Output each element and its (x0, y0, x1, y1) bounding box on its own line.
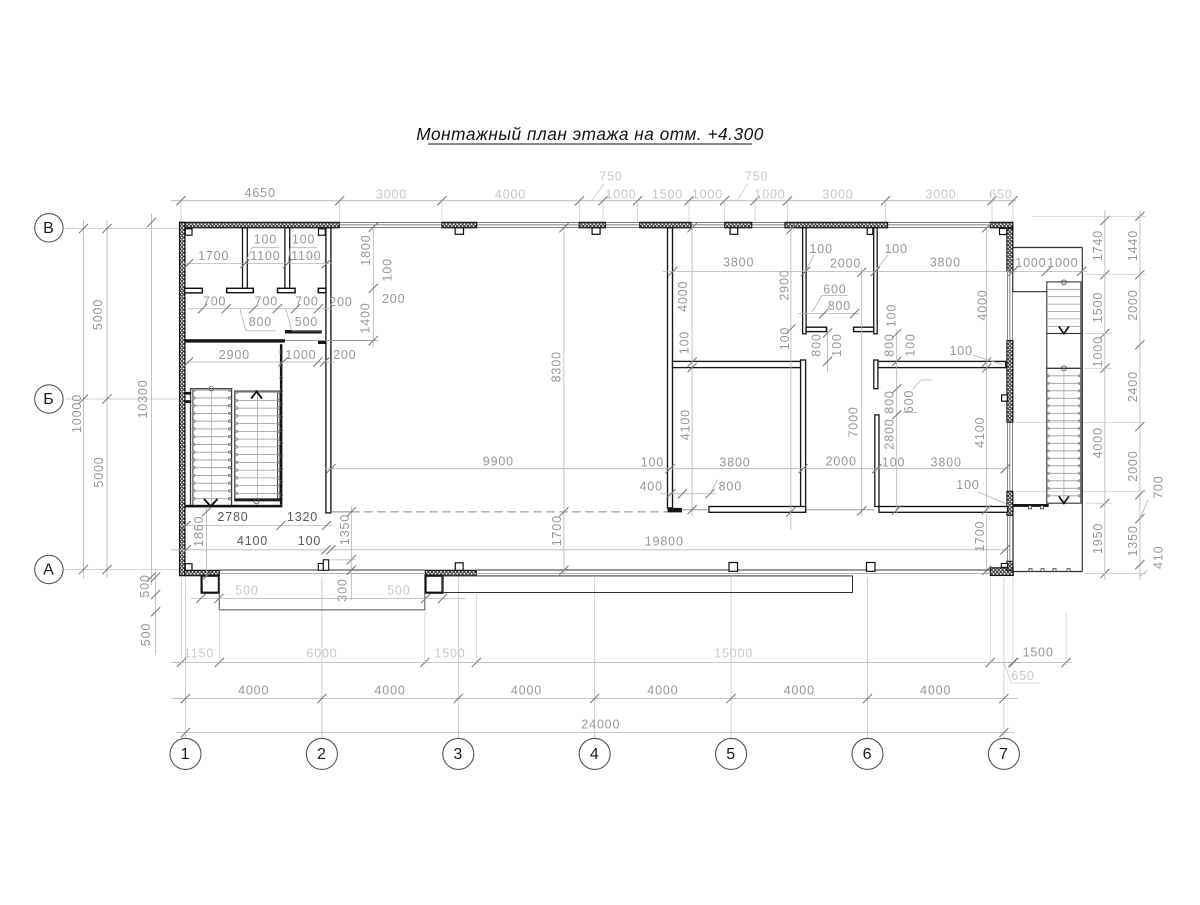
svg-text:100: 100 (885, 304, 899, 327)
svg-text:100: 100 (809, 242, 832, 256)
svg-text:4100: 4100 (237, 534, 268, 548)
svg-text:1500: 1500 (1023, 646, 1054, 660)
svg-text:4000: 4000 (647, 684, 678, 698)
svg-text:2000: 2000 (830, 256, 861, 270)
svg-text:100: 100 (830, 333, 844, 356)
svg-text:1700: 1700 (973, 521, 987, 552)
svg-text:А: А (43, 562, 55, 579)
svg-text:Монтажный план этажа на отм. +: Монтажный план этажа на отм. +4.300 (416, 124, 764, 144)
svg-text:1000: 1000 (605, 188, 636, 202)
svg-text:4000: 4000 (511, 684, 542, 698)
svg-text:3000: 3000 (376, 188, 407, 202)
svg-text:4000: 4000 (784, 684, 815, 698)
svg-text:1000: 1000 (754, 188, 785, 202)
svg-text:800: 800 (882, 333, 896, 356)
svg-text:200: 200 (382, 292, 405, 306)
svg-text:3800: 3800 (930, 256, 961, 270)
svg-text:Б: Б (43, 391, 54, 408)
svg-text:100: 100 (641, 455, 664, 469)
svg-text:1350: 1350 (1126, 525, 1140, 556)
svg-text:100: 100 (381, 258, 395, 281)
svg-text:750: 750 (599, 170, 622, 184)
svg-text:2780: 2780 (217, 510, 248, 524)
svg-text:6000: 6000 (306, 646, 337, 660)
svg-text:4100: 4100 (973, 417, 987, 448)
svg-text:1500: 1500 (1091, 292, 1105, 323)
svg-text:3: 3 (453, 746, 463, 763)
svg-text:4000: 4000 (976, 289, 990, 320)
svg-text:2400: 2400 (1126, 371, 1140, 402)
svg-text:500: 500 (295, 315, 318, 329)
svg-text:100: 100 (956, 478, 979, 492)
svg-text:100: 100 (298, 534, 321, 548)
svg-text:2000: 2000 (1126, 289, 1140, 320)
svg-text:100: 100 (292, 233, 315, 247)
svg-text:600: 600 (902, 390, 916, 413)
svg-text:5000: 5000 (91, 299, 105, 330)
svg-text:1700: 1700 (550, 515, 564, 546)
svg-text:1740: 1740 (1091, 230, 1105, 261)
svg-text:100: 100 (949, 344, 972, 358)
svg-text:1800: 1800 (359, 234, 373, 265)
svg-text:700: 700 (255, 294, 278, 308)
svg-text:1500: 1500 (652, 188, 683, 202)
svg-text:1000: 1000 (285, 348, 316, 362)
svg-text:15000: 15000 (714, 646, 753, 660)
svg-text:1700: 1700 (198, 249, 229, 263)
svg-text:600: 600 (823, 283, 846, 297)
svg-text:7000: 7000 (847, 406, 861, 437)
svg-text:3800: 3800 (723, 256, 754, 270)
svg-text:3800: 3800 (931, 455, 962, 469)
svg-text:4650: 4650 (245, 186, 276, 200)
svg-text:1950: 1950 (1091, 523, 1105, 554)
svg-text:650: 650 (1011, 669, 1034, 683)
svg-text:1440: 1440 (1126, 230, 1140, 261)
svg-text:8300: 8300 (550, 351, 564, 382)
svg-text:5: 5 (726, 746, 736, 763)
svg-text:10000: 10000 (70, 394, 84, 433)
svg-text:4000: 4000 (374, 684, 405, 698)
svg-text:В: В (43, 220, 55, 237)
svg-text:500: 500 (138, 574, 152, 597)
svg-text:800: 800 (828, 299, 851, 313)
svg-text:10300: 10300 (136, 379, 150, 418)
svg-text:500: 500 (139, 623, 153, 646)
svg-text:700: 700 (1151, 475, 1165, 498)
svg-text:800: 800 (810, 333, 824, 356)
svg-text:100: 100 (678, 331, 692, 354)
svg-text:500: 500 (235, 584, 258, 598)
svg-text:19800: 19800 (645, 535, 684, 549)
svg-text:2: 2 (317, 746, 327, 763)
svg-text:1100: 1100 (250, 249, 280, 263)
svg-text:100: 100 (882, 455, 905, 469)
svg-text:5000: 5000 (92, 456, 106, 487)
svg-text:200: 200 (333, 348, 356, 362)
svg-text:800: 800 (719, 479, 742, 493)
svg-text:1000: 1000 (1091, 336, 1105, 367)
svg-text:2000: 2000 (826, 455, 857, 469)
svg-text:2900: 2900 (219, 348, 250, 362)
svg-text:1000: 1000 (692, 188, 723, 202)
svg-text:100: 100 (904, 333, 918, 356)
svg-text:800: 800 (249, 315, 272, 329)
svg-text:4: 4 (590, 746, 600, 763)
svg-text:100: 100 (254, 233, 277, 247)
svg-text:700: 700 (203, 294, 226, 308)
svg-text:1000: 1000 (1015, 256, 1046, 270)
svg-text:750: 750 (745, 170, 768, 184)
svg-text:1350: 1350 (338, 514, 352, 545)
svg-text:500: 500 (387, 584, 410, 598)
svg-text:650: 650 (989, 188, 1012, 202)
svg-text:2000: 2000 (1126, 450, 1140, 481)
svg-text:4100: 4100 (678, 409, 692, 440)
svg-text:700: 700 (295, 294, 318, 308)
svg-text:1320: 1320 (287, 510, 318, 524)
svg-text:1400: 1400 (359, 302, 373, 333)
svg-text:4000: 4000 (676, 281, 690, 312)
svg-text:1100: 1100 (291, 249, 321, 263)
svg-text:2900: 2900 (777, 269, 791, 300)
svg-text:410: 410 (1151, 546, 1165, 569)
svg-text:400: 400 (639, 479, 662, 493)
svg-text:3800: 3800 (719, 455, 750, 469)
svg-text:7: 7 (999, 746, 1009, 763)
svg-text:2800: 2800 (883, 418, 897, 449)
svg-text:200: 200 (329, 295, 352, 309)
svg-text:4000: 4000 (920, 684, 951, 698)
svg-text:800: 800 (883, 390, 897, 413)
svg-text:9900: 9900 (483, 454, 514, 468)
svg-text:1860: 1860 (192, 516, 206, 547)
svg-text:3000: 3000 (822, 188, 853, 202)
svg-text:1150: 1150 (184, 646, 214, 660)
svg-text:1500: 1500 (434, 646, 465, 660)
svg-text:100: 100 (884, 242, 907, 256)
svg-text:3000: 3000 (925, 188, 956, 202)
svg-text:1: 1 (181, 746, 191, 763)
svg-text:6: 6 (863, 746, 873, 763)
svg-text:1000: 1000 (1047, 256, 1078, 270)
svg-text:4000: 4000 (238, 684, 269, 698)
svg-text:24000: 24000 (581, 717, 620, 731)
svg-text:4000: 4000 (495, 188, 526, 202)
svg-text:4000: 4000 (1091, 427, 1105, 458)
